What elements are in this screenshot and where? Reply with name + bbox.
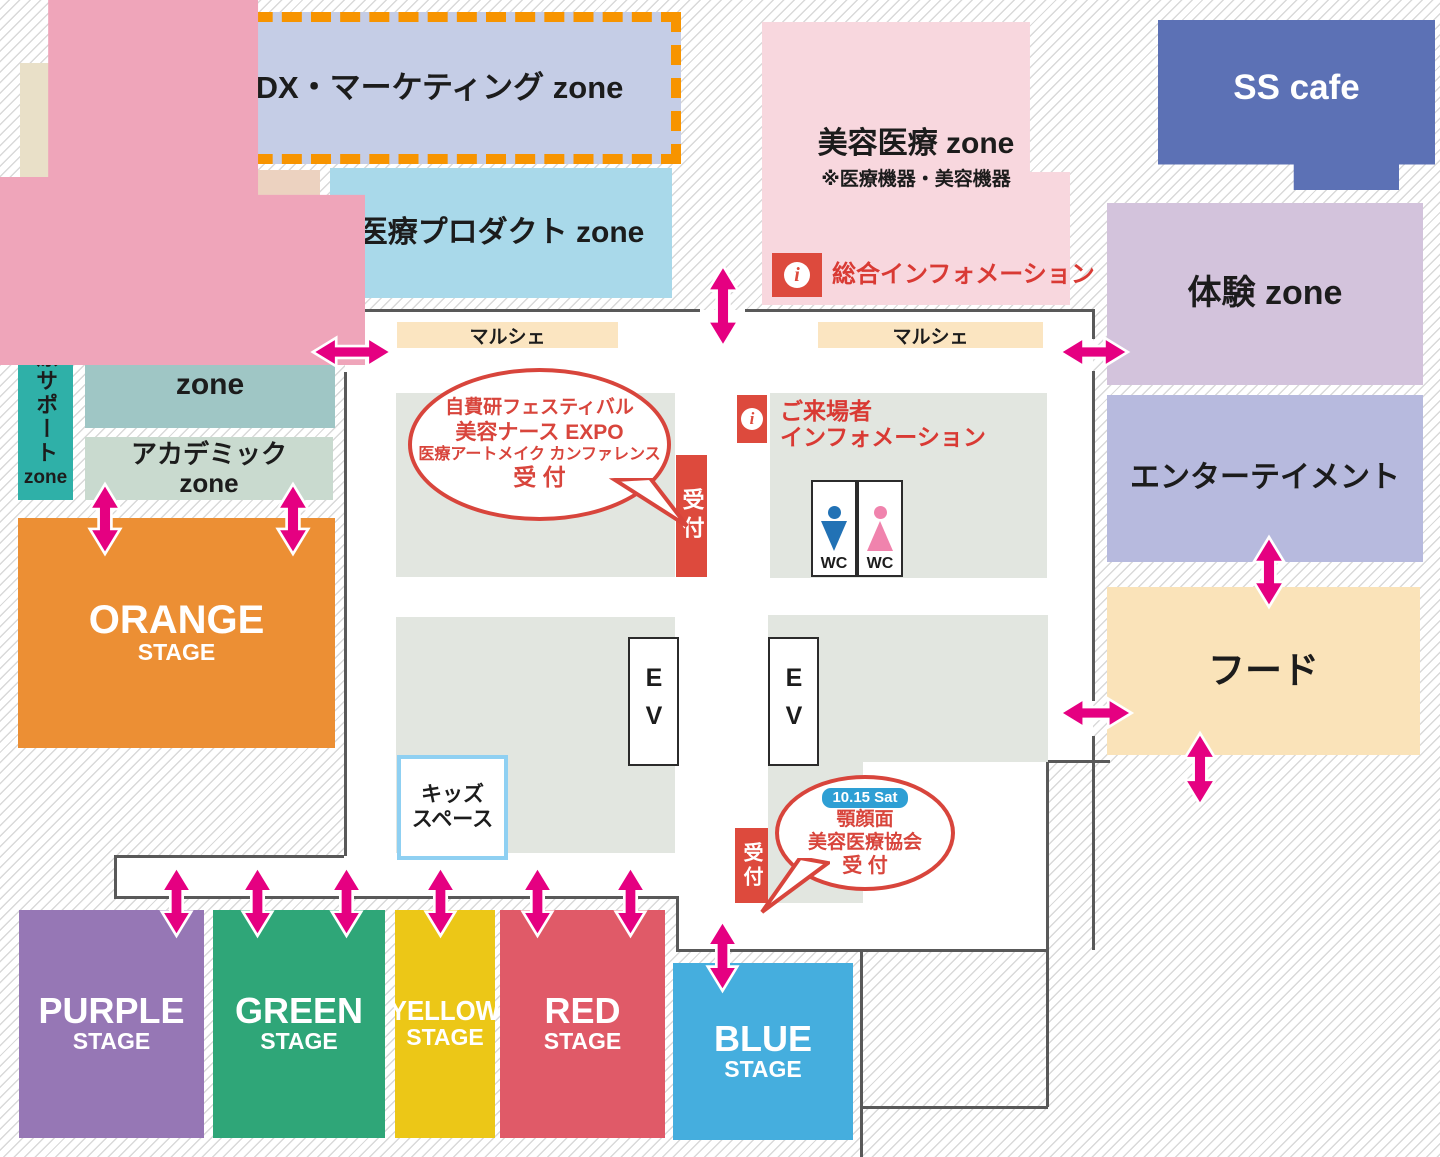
stage-blue: BLUE STAGE [673, 963, 853, 1140]
floor-map: 書 籍 zone 医療DX・マーケティング zone オーソ モレキュラー zo… [0, 0, 1440, 1157]
stage-green: GREEN STAGE [213, 910, 385, 1138]
wall [1092, 371, 1095, 701]
flow-arrow [88, 480, 122, 558]
wc-male: WC [811, 480, 857, 577]
wall [344, 372, 347, 856]
kids-space-label: キッズ [421, 783, 484, 807]
flow-arrow [706, 917, 739, 995]
flow-arrow [424, 863, 457, 940]
flow-arrow [521, 863, 554, 940]
elevator-right-label: EV [779, 664, 808, 740]
flow-arrow [1056, 697, 1136, 729]
wall [1092, 736, 1095, 950]
elevator-left: EV [628, 637, 679, 766]
flow-arrow [614, 863, 647, 940]
zone-taiken: 体験 zone [1107, 203, 1423, 385]
info-icon: i [737, 395, 767, 443]
kids-space-label: スペース [412, 808, 493, 832]
flow-arrow [1056, 336, 1132, 368]
wc-female: WC [857, 480, 903, 577]
wall [862, 1106, 1048, 1109]
elevator-right: EV [768, 637, 819, 766]
flow-arrow [1252, 533, 1286, 611]
stage-orange-name: ORANGE [89, 600, 265, 640]
wc-female-label: WC [867, 556, 894, 572]
female-icon [867, 506, 893, 551]
info-i-glyph: i [794, 264, 800, 287]
zone-beauty-title: 美容医療 zone [762, 127, 1070, 162]
flow-arrow [160, 863, 193, 940]
wall [114, 855, 117, 899]
flow-arrow [241, 863, 274, 940]
wall [745, 309, 1093, 312]
flow-arrow [308, 336, 396, 368]
elevator-left-label: EV [639, 664, 668, 740]
stage-red: RED STAGE [500, 910, 665, 1138]
flow-arrow [276, 480, 310, 558]
bubble-tail [595, 478, 690, 533]
wall [115, 896, 677, 899]
zone-beauty-note: ※医療機器・美容機器 [762, 169, 1070, 191]
wall [1046, 760, 1110, 763]
zone-taiken-label: 体験 zone [1188, 274, 1343, 313]
marche-right: マルシェ [818, 322, 1043, 348]
wall [357, 309, 700, 312]
visitor-information-label: ご来場者 インフォメーション [780, 398, 986, 451]
zone-ss-cafe: SS cafe [1158, 20, 1435, 190]
kids-space: キッズ スペース [397, 755, 508, 860]
stage-orange-sub: STAGE [138, 640, 216, 665]
date-badge: 10.15 Sat [822, 788, 907, 808]
info-icon: i [772, 253, 822, 297]
info-i-glyph: i [750, 409, 755, 429]
zone-food-label: フード [1208, 650, 1319, 693]
zone-product-label: 医療プロダクト zone [358, 216, 645, 251]
wall [1092, 309, 1095, 339]
zone-medical-product: 医療プロダクト zone [330, 168, 672, 298]
stage-purple: PURPLE STAGE [19, 910, 204, 1138]
stage-yellow: YELLOW STAGE [395, 910, 495, 1138]
ss-cafe-label: SS cafe [1158, 68, 1435, 108]
marche-left-label: マルシェ [469, 322, 545, 349]
flow-arrow [330, 863, 363, 940]
zone-academic-label: アカデミック [131, 440, 287, 469]
bubble-tail [760, 858, 830, 916]
wall [860, 949, 863, 1157]
zone-entertainment-label: エンターテイメント [1130, 461, 1400, 496]
wall [1046, 762, 1049, 1107]
zone-dx-label: 医療DX・マーケティング zone [194, 70, 624, 106]
zone-support-suffix: zone [24, 467, 67, 489]
zone-food: フード [1107, 587, 1420, 755]
wc-male-label: WC [821, 556, 848, 572]
male-icon [821, 506, 847, 551]
flow-arrow [1183, 729, 1217, 809]
wall [115, 855, 344, 858]
flow-arrow [706, 261, 740, 351]
wall [676, 896, 679, 952]
marche-right-label: マルシェ [892, 322, 968, 349]
zone-academic-label: zone [179, 469, 238, 498]
marche-left: マルシェ [397, 322, 618, 348]
zone-cosmetics-label: zone [176, 368, 244, 403]
hall-floor [115, 855, 345, 897]
general-information-label: 総合インフォメーション [832, 261, 1095, 289]
